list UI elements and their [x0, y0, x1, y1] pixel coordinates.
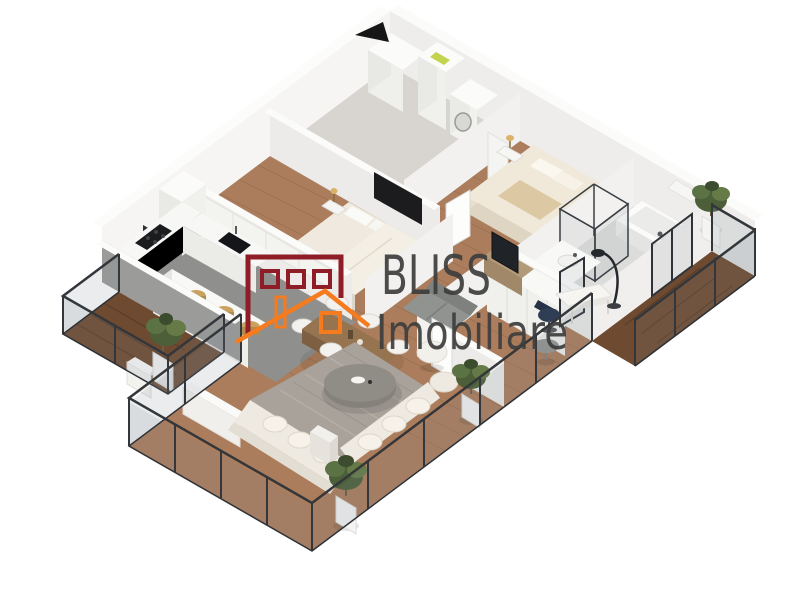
watermark-brand-line1: BLISS [381, 244, 491, 307]
basin-faucet [573, 253, 577, 257]
isometric-apartment-scene: BLISS Imobiliare [0, 0, 800, 600]
bed1-lamp [331, 188, 338, 194]
watermark-brand-line2: Imobiliare [376, 305, 568, 361]
washer-door [455, 113, 471, 131]
bed2-lamp [506, 135, 514, 141]
floor-plan-render: BLISS Imobiliare [0, 0, 800, 600]
table-decor [348, 330, 353, 339]
